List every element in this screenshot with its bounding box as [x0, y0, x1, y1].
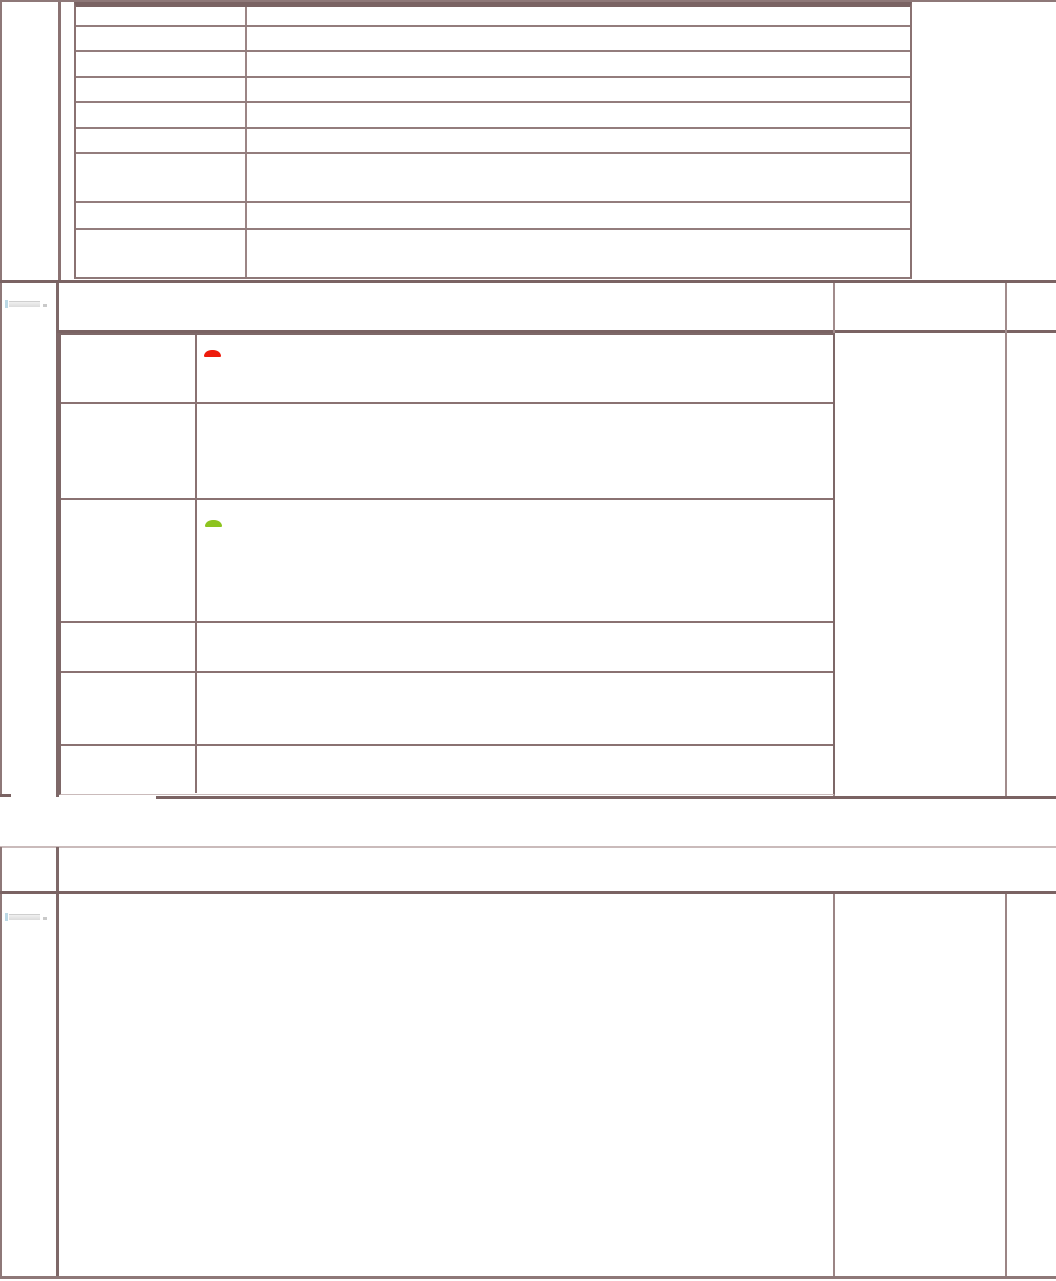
section-bottom-border	[156, 796, 1056, 799]
section-middle	[0, 280, 1056, 800]
middle-detail-table	[59, 333, 835, 795]
column-divider	[1005, 283, 1007, 798]
red-status-indicator	[204, 350, 221, 357]
table-row	[61, 746, 833, 793]
table-row	[61, 335, 833, 404]
table-row	[76, 230, 910, 277]
table-cell	[247, 129, 910, 152]
table-row	[76, 52, 910, 78]
section-top	[0, 0, 1056, 283]
table-row	[76, 78, 910, 103]
table-row	[61, 500, 833, 623]
table-cell	[76, 103, 247, 127]
table-cell	[61, 673, 197, 744]
table-row	[76, 103, 910, 129]
green-status-indicator	[205, 520, 222, 527]
section-top-border	[0, 280, 1056, 283]
table-row	[61, 673, 833, 746]
section-bottom	[0, 845, 1056, 1279]
placeholder-dot-icon	[43, 304, 47, 307]
section-top-border	[0, 846, 1056, 848]
header-bottom-border	[0, 891, 1056, 894]
table-cell	[61, 335, 197, 402]
table-cell	[247, 78, 910, 101]
collapsed-control-placeholder	[5, 299, 47, 308]
left-column-divider	[56, 847, 59, 1278]
table-row	[76, 203, 910, 230]
table-cell	[61, 746, 197, 793]
left-column-divider	[58, 2, 61, 283]
placeholder-dot-icon	[43, 917, 47, 920]
table-cell	[61, 623, 197, 671]
table-cell	[76, 78, 247, 101]
section-left-border	[0, 847, 2, 1278]
table-row	[76, 154, 910, 203]
table-cell	[76, 129, 247, 152]
section-bottom-border	[0, 1276, 1056, 1279]
placeholder-tick-icon	[5, 300, 8, 308]
placeholder-bar	[9, 914, 40, 920]
table-row	[76, 7, 910, 27]
table-cell	[76, 230, 247, 277]
placeholder-bar	[9, 301, 40, 307]
table-cell	[61, 404, 197, 498]
column-divider	[833, 894, 835, 1276]
table-cell	[197, 623, 833, 671]
table-row	[61, 404, 833, 500]
table-cell	[197, 500, 833, 621]
table-cell	[76, 203, 247, 228]
table-cell	[76, 27, 247, 50]
table-cell	[247, 230, 910, 277]
section-bottom-border	[0, 794, 11, 797]
table-cell	[76, 7, 247, 25]
table-cell	[197, 673, 833, 744]
table-cell	[247, 203, 910, 228]
table-cell	[61, 500, 197, 621]
placeholder-tick-icon	[5, 913, 8, 921]
table-cell	[197, 746, 833, 793]
document-page	[0, 0, 1056, 1281]
table-row	[76, 27, 910, 52]
top-info-table	[74, 2, 912, 279]
table-row	[61, 623, 833, 673]
table-cell	[247, 103, 910, 127]
column-divider	[1005, 894, 1007, 1276]
table-row	[76, 129, 910, 154]
table-cell	[247, 7, 910, 25]
table-cell	[76, 52, 247, 76]
table-cell	[247, 52, 910, 76]
collapsed-control-placeholder	[5, 912, 47, 921]
table-cell	[247, 27, 910, 50]
section-left-border	[0, 283, 2, 796]
table-cell	[247, 154, 910, 201]
table-cell	[76, 154, 247, 201]
table-cell	[197, 335, 833, 402]
table-cell	[197, 404, 833, 498]
